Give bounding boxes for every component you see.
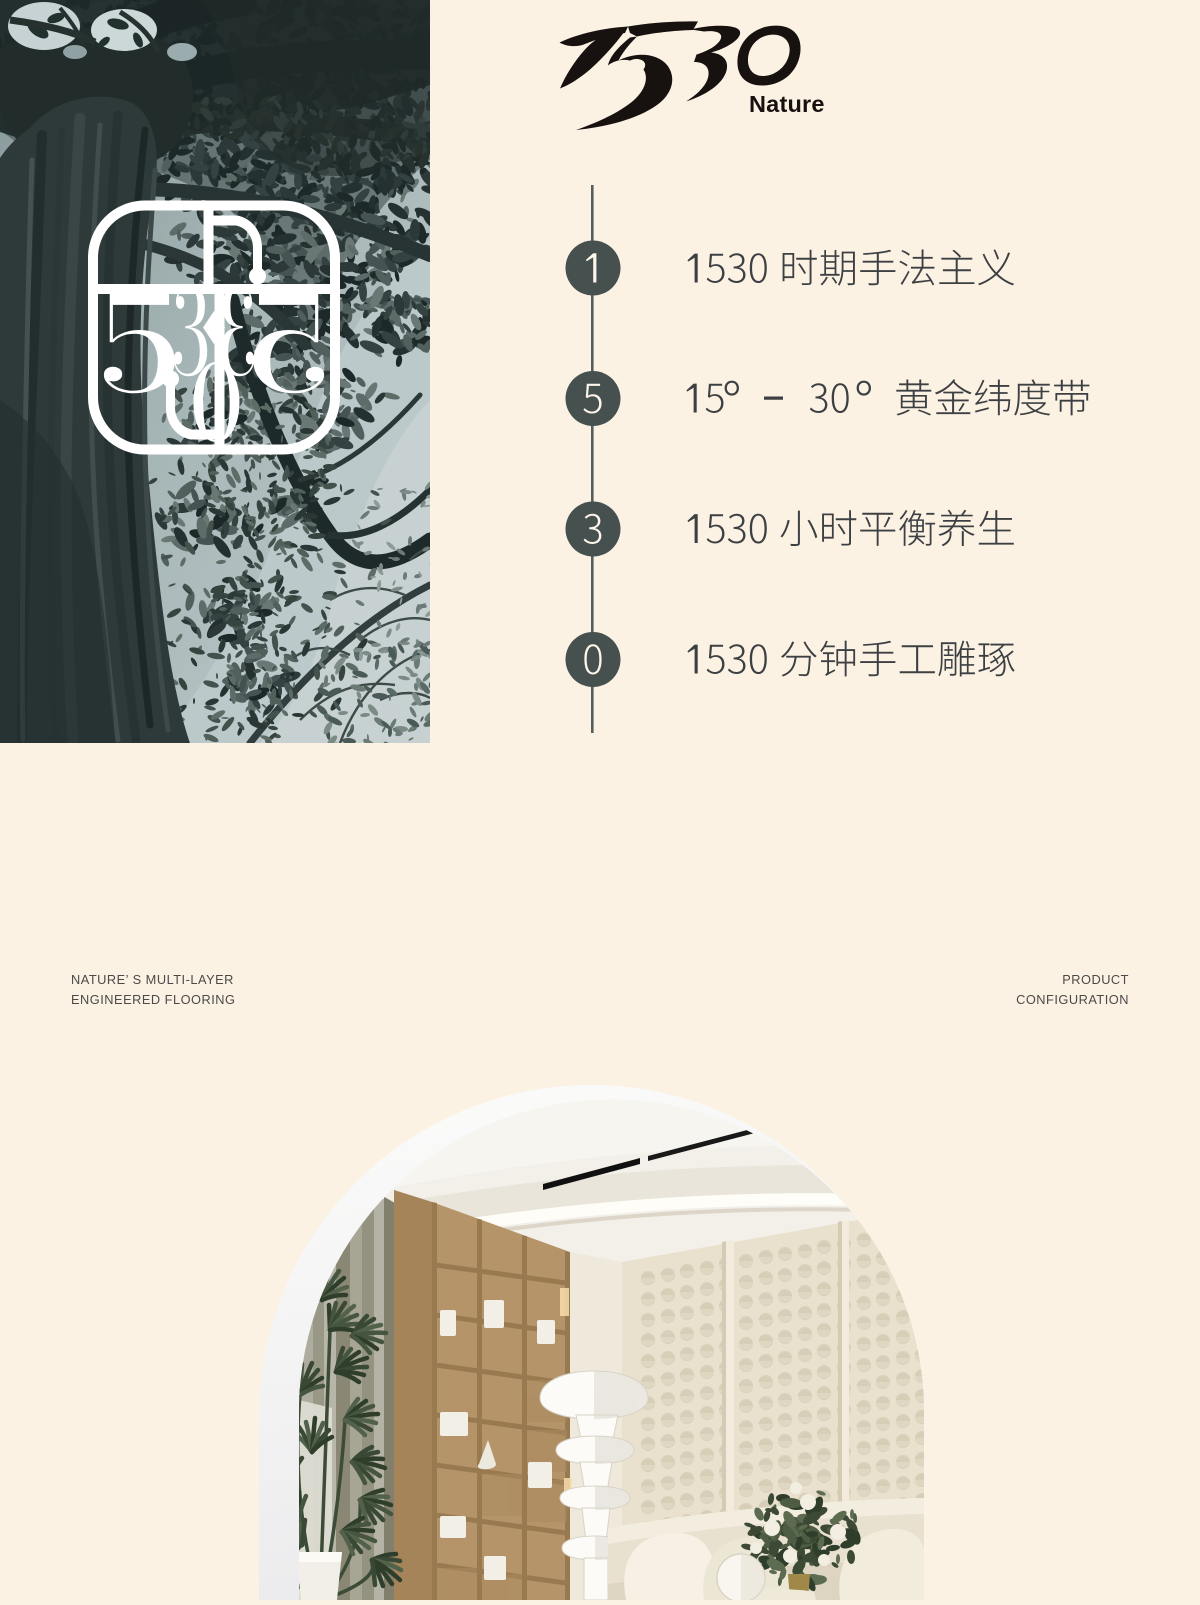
svg-text:Nature: Nature [749, 91, 825, 117]
svg-text:NATURE’ S MULTI-LAYER: NATURE’ S MULTI-LAYER [71, 972, 234, 987]
svg-text:PRODUCT: PRODUCT [1062, 972, 1129, 987]
svg-text:CONFIGURATION: CONFIGURATION [1016, 992, 1129, 1007]
svg-text:ENGINEERED FLOORING: ENGINEERED FLOORING [71, 992, 236, 1007]
